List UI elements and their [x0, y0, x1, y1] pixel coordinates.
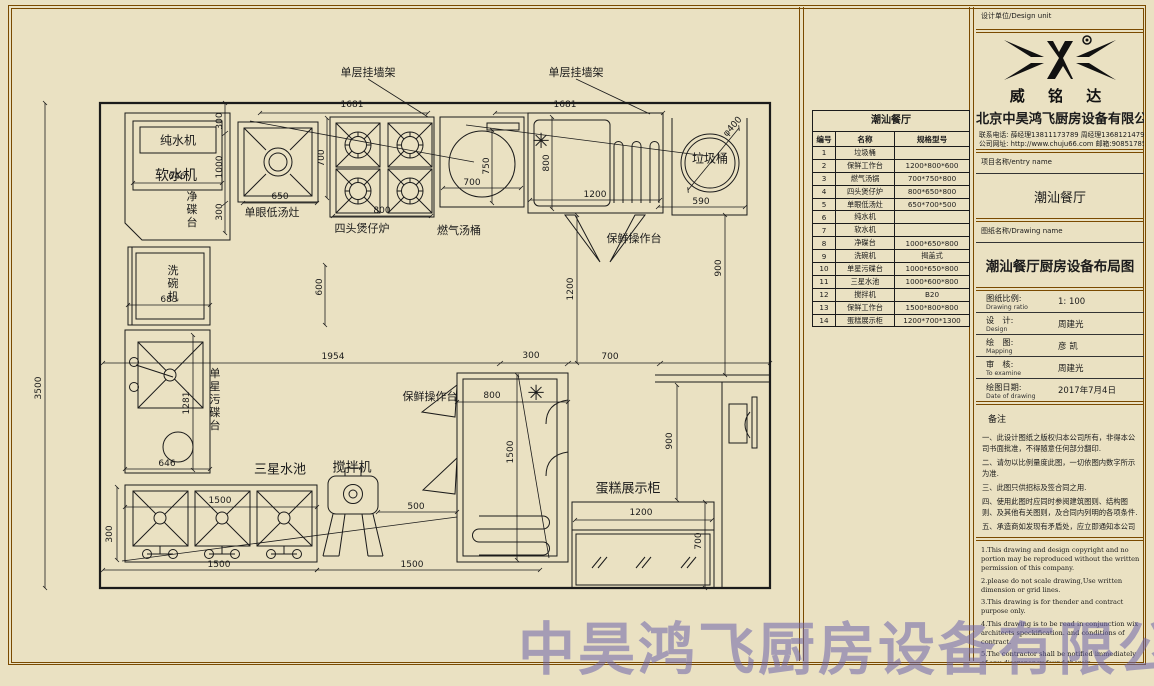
cell-no: 11	[813, 276, 835, 288]
dimension-label: 1200	[630, 508, 653, 518]
logo-emblem-icon	[995, 35, 1125, 87]
table-row: 8 净碟台 1000*650*800	[813, 237, 969, 250]
table-row: 1 垃圾桶	[813, 147, 969, 160]
plan-label: 单眼低汤灶	[245, 204, 300, 220]
cell-name: 净碟台	[835, 237, 894, 249]
floor-plan-area: 单层挂墙架单层挂墙架纯水机软水机净碟台单眼低汤灶四头煲仔炉燃气汤桶保鲜操作台垃圾…	[0, 0, 800, 682]
room-walls	[100, 103, 770, 588]
plan-label: 纯水机	[160, 132, 196, 149]
dimension-label: 800	[483, 391, 500, 401]
info-label-zh: 绘图日期:	[986, 381, 1054, 393]
cell-spec	[894, 224, 969, 236]
dimension-label: 800	[542, 154, 552, 171]
table-row: 11 三星水池 1000*600*800	[813, 276, 969, 289]
note-item: 一、此设计图纸之版权归本公司所有，非得本公司书面批准，不得随意任何部分翻印.	[982, 433, 1139, 455]
divider	[976, 29, 1144, 33]
cell-spec	[894, 147, 969, 159]
cell-spec: 700*750*800	[894, 173, 969, 185]
project-name: 潮汕餐厅	[976, 174, 1144, 218]
dimension-label: 600	[315, 278, 325, 295]
plan-label: 单星污碟台	[206, 368, 222, 433]
cell-no: 7	[813, 224, 835, 236]
cell-name: 蛋糕展示柜	[835, 315, 894, 327]
cell-name: 垃圾桶	[835, 147, 894, 159]
drain-symbol: ✳	[532, 129, 550, 153]
dimension-label: 700	[601, 352, 618, 362]
note-item: 五、承造商如发现有矛盾处，应立即通知本公司	[982, 522, 1139, 533]
cell-name: 保鲜工作台	[835, 302, 894, 314]
dimension-label: 700	[317, 149, 327, 166]
cell-spec: 1000*650*800	[894, 263, 969, 275]
dimension-label: 1281	[182, 392, 192, 415]
dimension-label: 1681	[554, 100, 577, 110]
cell-name: 保鲜工作台	[835, 160, 894, 172]
dimension-label: 590	[692, 197, 709, 207]
dimension-label: 900	[665, 432, 675, 449]
cell-no: 5	[813, 199, 835, 211]
plan-label: 燃气汤桶	[437, 222, 481, 238]
info-label-en: Date of drawing	[986, 393, 1054, 400]
cell-name: 纯水机	[835, 211, 894, 223]
cell-spec: B20	[894, 289, 969, 301]
dimension-label: 650	[271, 192, 288, 202]
cell-no: 9	[813, 250, 835, 262]
floor-plan	[0, 0, 800, 682]
equipment-table-body: 1 垃圾桶 2 保鲜工作台 1200*800*600 3 燃气汤锅 700*75…	[813, 147, 969, 326]
design-unit-label: 设计单位/Design unit	[976, 7, 1144, 29]
cell-spec: 1200*700*1300	[894, 315, 969, 327]
info-label-en: To examine	[986, 370, 1054, 377]
divider-title-block	[969, 7, 974, 661]
cell-no: 1	[813, 147, 835, 159]
plan-label: 保鲜操作台	[403, 388, 458, 404]
table-row: 13 保鲜工作台 1500*800*800	[813, 302, 969, 315]
equipment-table-header: 编号 名称 规格型号	[813, 132, 969, 147]
company-logo: 威 铭 达	[976, 35, 1144, 111]
column-header-name: 名称	[835, 132, 894, 146]
dimension-label: 900	[714, 259, 724, 276]
remark-label: 备注	[976, 405, 1144, 427]
cell-no: 3	[813, 173, 835, 185]
plan-label: 四头煲仔炉	[335, 220, 390, 236]
notes-chinese: 一、此设计图纸之版权归本公司所有，非得本公司书面批准，不得随意任何部分翻印.二、…	[976, 427, 1144, 537]
dimension-label: 750	[482, 157, 492, 174]
note-item: 4.This drawing is to be read in conjunct…	[981, 620, 1140, 648]
info-value: 2017年7月4日	[1054, 384, 1116, 396]
dimension-label: 800	[373, 206, 390, 216]
plan-label: 单层挂墙架	[341, 64, 396, 80]
info-label-zh: 绘 图:	[986, 336, 1054, 348]
table-row: 10 单星污碟台 1000*650*800	[813, 263, 969, 276]
table-row: 14 蛋糕展示柜 1200*700*1300	[813, 315, 969, 327]
info-label-en: Mapping	[986, 348, 1054, 355]
dimension-label: 700	[694, 532, 704, 549]
dimension-label: 1500	[208, 560, 231, 570]
cell-no: 13	[813, 302, 835, 314]
cell-name: 软水机	[835, 224, 894, 236]
cell-spec: 1200*800*600	[894, 160, 969, 172]
cell-no: 12	[813, 289, 835, 301]
table-row: 6 纯水机	[813, 211, 969, 224]
table-row: 3 燃气汤锅 700*750*800	[813, 173, 969, 186]
info-rows: 图纸比例: Drawing ratio 1: 100 设 计: Design 周…	[976, 291, 1144, 401]
info-value: 周建光	[1054, 318, 1084, 330]
plan-label: 净碟台	[183, 191, 199, 230]
cell-name: 搅拌机	[835, 289, 894, 301]
cell-no: 2	[813, 160, 835, 172]
cell-no: 6	[813, 211, 835, 223]
note-item: 三、此图只供招标及签合同之用.	[982, 483, 1139, 494]
title-block: 设计单位/Design unit 威 铭 达 北京中昊鸿飞厨房设备有限公司 联系…	[976, 7, 1144, 662]
cell-spec: 800*650*800	[894, 186, 969, 198]
dimension-label: 683	[160, 295, 177, 305]
note-item: 1.This drawing and design copyright and …	[981, 546, 1140, 574]
info-label-en: Drawing ratio	[986, 304, 1054, 311]
dimension-label: 1000	[215, 156, 225, 179]
info-label-zh: 审 核:	[986, 358, 1054, 370]
cell-name: 洗碗机	[835, 250, 894, 262]
column-header-spec: 规格型号	[894, 132, 969, 146]
info-value: 周建光	[1054, 362, 1084, 374]
info-label-zh: 设 计:	[986, 314, 1054, 326]
cell-name: 四头煲仔炉	[835, 186, 894, 198]
dimension-label: 3500	[34, 377, 44, 400]
plan-label: 三星水池	[254, 459, 306, 478]
dimension-label: 646	[158, 459, 175, 469]
dimension-label: 1681	[341, 100, 364, 110]
plan-label: 蛋糕展示柜	[595, 478, 660, 497]
dimension-label: 1200	[584, 190, 607, 200]
project-label: 项目名称/entry name	[976, 153, 1144, 173]
cell-spec: 1000*600*800	[894, 276, 969, 288]
note-item: 5.The contractor shall be notified immed…	[981, 650, 1140, 662]
table-row: 4 四头煲仔炉 800*650*800	[813, 186, 969, 199]
info-row: 审 核: To examine 周建光	[976, 357, 1144, 379]
dimension-label: 1500	[401, 560, 424, 570]
company-name: 北京中昊鸿飞厨房设备有限公司	[976, 111, 1144, 131]
plan-label: 垃圾桶	[692, 150, 728, 167]
dimension-label: 1500	[506, 441, 516, 464]
drain-symbol: ✳	[527, 381, 545, 405]
dimension-label: 300	[522, 351, 539, 361]
info-value: 1: 100	[1054, 297, 1085, 307]
cell-spec: 650*700*500	[894, 199, 969, 211]
cell-name: 单眼低汤灶	[835, 199, 894, 211]
equipment-table-title: 潮汕餐厅	[813, 111, 969, 132]
cell-no: 4	[813, 186, 835, 198]
cell-spec: 揭盖式	[894, 250, 969, 262]
note-item: 2.please do not scale drawing,Use writte…	[981, 577, 1140, 595]
cell-spec: 1000*650*800	[894, 237, 969, 249]
drawing-name: 潮汕餐厅厨房设备布局图	[976, 243, 1144, 287]
plan-label: 保鲜操作台	[607, 230, 662, 246]
dimension-label: 1954	[322, 352, 345, 362]
notes-english: 1.This drawing and design copyright and …	[976, 541, 1144, 662]
logo-text: 威 铭 达	[976, 85, 1144, 106]
column-header-no: 编号	[813, 132, 835, 146]
plan-label: 搅拌机	[332, 457, 371, 476]
info-row: 设 计: Design 周建光	[976, 313, 1144, 335]
company-contacts: 联系电话: 薛经理13811173789 周经理13681214796 公司网址…	[976, 131, 1144, 149]
cell-no: 10	[813, 263, 835, 275]
info-label-en: Design	[986, 326, 1054, 333]
contact-phones: 联系电话: 薛经理13811173789 周经理13681214796	[979, 131, 1144, 140]
dimension-label: 300	[105, 525, 115, 542]
note-item: 四、使用此图时应同时参阅建筑图则、结构图则、及其他有关图则，及合同内列明的各项条…	[982, 497, 1139, 519]
contact-web-email: 公司网址: http://www.chuju66.com 邮箱:90851785…	[979, 140, 1144, 149]
cell-no: 8	[813, 237, 835, 249]
dimension-label: 1500	[209, 496, 232, 506]
info-value: 彦 凯	[1054, 340, 1078, 352]
table-row: 7 软水机	[813, 224, 969, 237]
drawing-name-label: 图纸名称/Drawing name	[976, 222, 1144, 242]
note-item: 3.This drawing is for thender and contra…	[981, 598, 1140, 616]
cell-spec: 1500*800*800	[894, 302, 969, 314]
info-row: 图纸比例: Drawing ratio 1: 100	[976, 291, 1144, 313]
info-label-zh: 图纸比例:	[986, 292, 1054, 304]
dimension-label: 300	[215, 203, 225, 220]
table-row: 5 单眼低汤灶 650*700*500	[813, 199, 969, 212]
table-row: 9 洗碗机 揭盖式	[813, 250, 969, 263]
table-row: 2 保鲜工作台 1200*800*600	[813, 160, 969, 173]
drawing-sheet: 单层挂墙架单层挂墙架纯水机软水机净碟台单眼低汤灶四头煲仔炉燃气汤桶保鲜操作台垃圾…	[0, 0, 1154, 682]
dimension-label: 500	[407, 502, 424, 512]
note-item: 二、请勿以比例量度此图，一切依图内数字所示为准.	[982, 458, 1139, 480]
cell-spec	[894, 211, 969, 223]
info-row: 绘图日期: Date of drawing 2017年7月4日	[976, 379, 1144, 401]
cell-name: 三星水池	[835, 276, 894, 288]
equipment-table: 潮汕餐厅 编号 名称 规格型号 1 垃圾桶 2 保鲜工作台 1200*800*6…	[812, 110, 970, 327]
cell-name: 燃气汤锅	[835, 173, 894, 185]
dimension-label: 700	[463, 178, 480, 188]
cell-name: 单星污碟台	[835, 263, 894, 275]
table-row: 12 搅拌机 B20	[813, 289, 969, 302]
dimension-label: 1200	[566, 278, 576, 301]
cell-no: 14	[813, 315, 835, 327]
dimension-label: 646	[168, 172, 185, 182]
plan-label: 单层挂墙架	[549, 64, 604, 80]
dimension-label: 300	[215, 112, 225, 129]
info-row: 绘 图: Mapping 彦 凯	[976, 335, 1144, 357]
